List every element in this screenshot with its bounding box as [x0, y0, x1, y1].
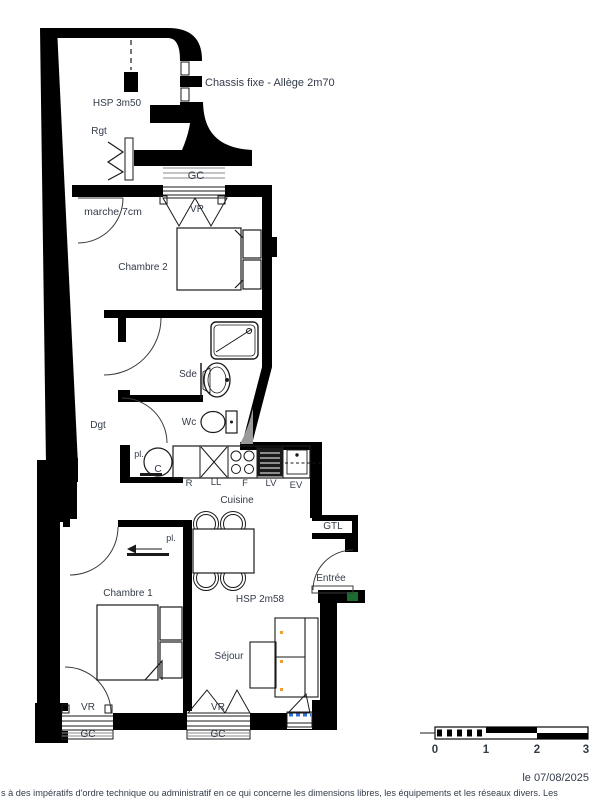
label-evier: EV — [290, 480, 303, 491]
label-rgt: Rgt — [91, 126, 107, 137]
footer-disclaimer: s à des impératifs d'ordre technique ou … — [1, 788, 558, 798]
label-gc-top: GC — [188, 170, 205, 182]
folding-door-rgt — [108, 138, 133, 180]
sofa — [250, 618, 318, 697]
shower — [211, 322, 258, 359]
label-hsp-top: HSP 3m50 — [93, 98, 142, 109]
label-hsp-main: HSP 2m58 — [236, 594, 285, 605]
label-vr-chambre1: VR — [81, 702, 95, 713]
label-wc: Wc — [182, 417, 196, 428]
label-entree: Entrée — [316, 573, 346, 584]
label-lave-vaisselle: LV — [266, 478, 278, 489]
flue — [124, 40, 138, 92]
date-label: le 07/08/2025 — [522, 772, 589, 784]
outer-walls — [35, 28, 365, 743]
label-chauffe-eau: C — [154, 464, 161, 475]
floorplan-page: Chassis fixe - Allège 2m70 HSP 3m50 Rgt … — [0, 0, 601, 800]
label-gtl: GTL — [323, 521, 343, 532]
label-four: F — [242, 478, 248, 489]
label-dgt: Dgt — [90, 420, 106, 431]
label-vr-top: VR — [190, 204, 204, 215]
door-arc-chambre2 — [78, 198, 123, 243]
door-arc-sde — [104, 318, 161, 375]
floorplan-canvas: Chassis fixe - Allège 2m70 HSP 3m50 Rgt … — [0, 0, 601, 800]
bed-chambre1 — [97, 605, 182, 680]
bed-chambre2 — [177, 228, 261, 290]
coffee-table — [250, 642, 276, 688]
kitchen-counter — [173, 446, 321, 478]
label-marche: marche 7cm — [84, 206, 142, 218]
scale-bar: 0 1 2 3 — [420, 727, 589, 756]
label-cuisine: Cuisine — [220, 495, 254, 506]
scale-tick-2: 2 — [534, 744, 540, 756]
label-sejour: Séjour — [215, 651, 245, 662]
label-vr-sejour: VR — [211, 702, 225, 713]
label-sde: Sde — [179, 369, 197, 380]
label-gc-chambre1: GC — [81, 729, 96, 740]
door-arc-chambre1 — [70, 527, 118, 575]
label-lave-linge: LL — [211, 477, 222, 488]
label-chassis-fixe: Chassis fixe - Allège 2m70 — [205, 77, 335, 89]
toilet — [201, 411, 237, 433]
scale-tick-0: 0 — [432, 744, 438, 756]
label-pl-chambre1: pl. — [166, 533, 176, 543]
label-chambre2: Chambre 2 — [118, 262, 168, 273]
closet-chambre1 — [127, 545, 169, 557]
washbasin — [201, 363, 230, 399]
label-pl-cuisine: pl. — [134, 449, 144, 459]
door-arc-wc — [122, 398, 167, 443]
label-gc-sejour: GC — [211, 729, 226, 740]
plan-labels: Chassis fixe - Allège 2m70 HSP 3m50 Rgt … — [81, 77, 347, 740]
scale-tick-3: 3 — [583, 744, 589, 756]
door-arc-entree — [313, 550, 353, 590]
scale-tick-1: 1 — [483, 744, 490, 756]
dining-table — [193, 512, 254, 591]
label-refrigerateur: R — [186, 478, 193, 489]
label-chambre1: Chambre 1 — [103, 588, 153, 599]
